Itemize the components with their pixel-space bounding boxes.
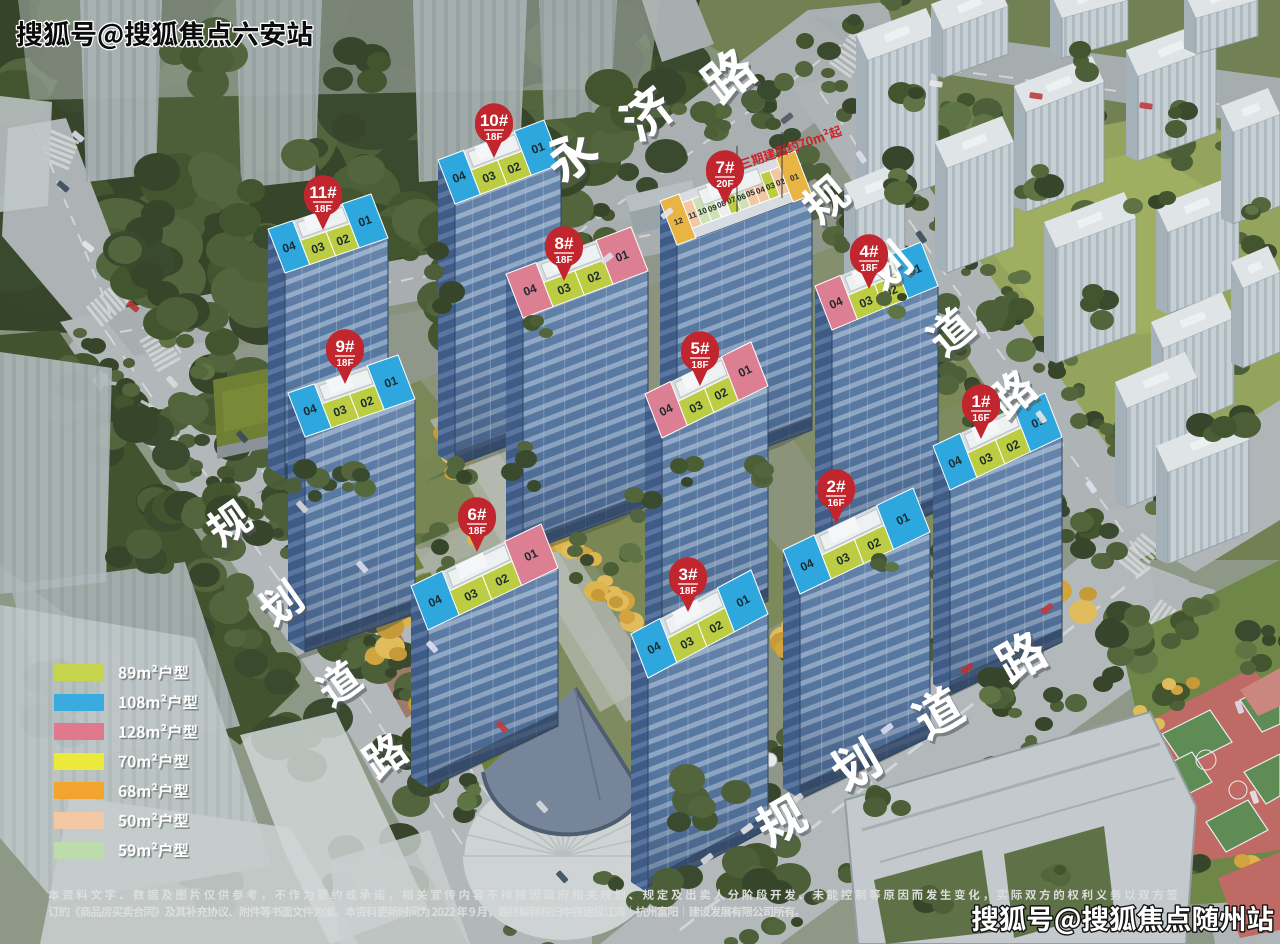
svg-text:11#: 11# (309, 183, 337, 202)
svg-text:18F: 18F (555, 255, 572, 266)
svg-text:2#: 2# (827, 477, 846, 496)
svg-text:9#: 9# (336, 337, 355, 356)
svg-text:5#: 5# (691, 339, 710, 358)
svg-text:6#: 6# (468, 505, 487, 524)
svg-text:18F: 18F (860, 263, 877, 274)
svg-text:18F: 18F (314, 204, 331, 215)
svg-text:16F: 16F (827, 498, 844, 509)
svg-text:18F: 18F (691, 360, 708, 371)
svg-text:16F: 16F (972, 413, 989, 424)
svg-text:7#: 7# (716, 158, 735, 177)
svg-text:8#: 8# (555, 234, 574, 253)
svg-text:18F: 18F (336, 358, 353, 369)
svg-text:18F: 18F (468, 526, 485, 537)
svg-text:3#: 3# (679, 565, 698, 584)
svg-text:18F: 18F (679, 586, 696, 597)
svg-text:20F: 20F (716, 179, 733, 190)
svg-text:1#: 1# (972, 392, 991, 411)
svg-text:18F: 18F (485, 132, 502, 143)
svg-text:10#: 10# (480, 111, 509, 130)
svg-text:4#: 4# (860, 242, 879, 261)
